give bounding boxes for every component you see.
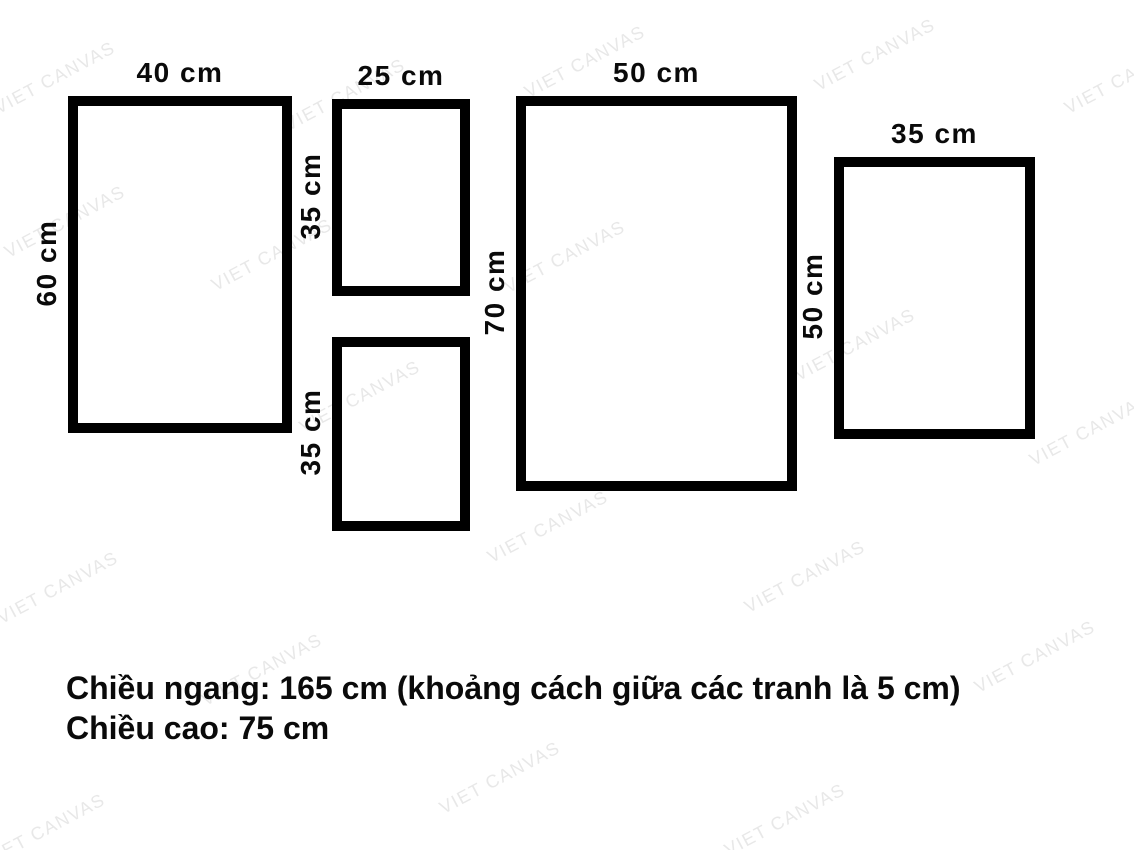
note-horizontal-total: Chiều ngang: 165 cm (khoảng cách giữa cá… — [66, 668, 961, 708]
watermark-text: VIET CANVAS — [741, 536, 869, 617]
frame-rect-left-large — [68, 96, 292, 433]
watermark-text: VIET CANVAS — [971, 616, 1099, 697]
watermark-text: VIET CANVAS — [721, 779, 849, 850]
watermark-text: VIET CANVAS — [1061, 37, 1134, 118]
frame-rect-middle-bottom — [332, 337, 470, 531]
width-label-right: 35 cm — [814, 117, 1055, 151]
width-label-left-large: 40 cm — [48, 56, 312, 90]
frame-rect-middle-top — [332, 99, 470, 296]
frame-rect-center-large — [516, 96, 797, 491]
watermark-text: VIET CANVAS — [1026, 389, 1134, 470]
height-label-center-large: 70 cm — [478, 232, 512, 352]
dimension-notes: Chiều ngang: 165 cm (khoảng cách giữa cá… — [66, 668, 961, 748]
watermark-text: VIET CANVAS — [484, 486, 612, 567]
width-label-middle-top: 25 cm — [312, 59, 490, 93]
watermark-text: VIET CANVAS — [0, 789, 109, 850]
watermark-text: VIET CANVAS — [436, 737, 564, 818]
height-label-left-large: 60 cm — [30, 203, 64, 323]
height-label-middle-top: 35 cm — [294, 136, 328, 256]
frame-rect-right — [834, 157, 1035, 439]
watermark-text: VIET CANVAS — [811, 14, 939, 95]
note-vertical-total: Chiều cao: 75 cm — [66, 708, 961, 748]
watermark-text: VIET CANVAS — [0, 547, 122, 628]
height-label-right: 50 cm — [796, 236, 830, 356]
width-label-center-large: 50 cm — [496, 56, 817, 90]
height-label-middle-bottom: 35 cm — [294, 372, 328, 492]
gallery-wall-diagram: VIET CANVASVIET CANVASVIET CANVASVIET CA… — [0, 0, 1134, 850]
